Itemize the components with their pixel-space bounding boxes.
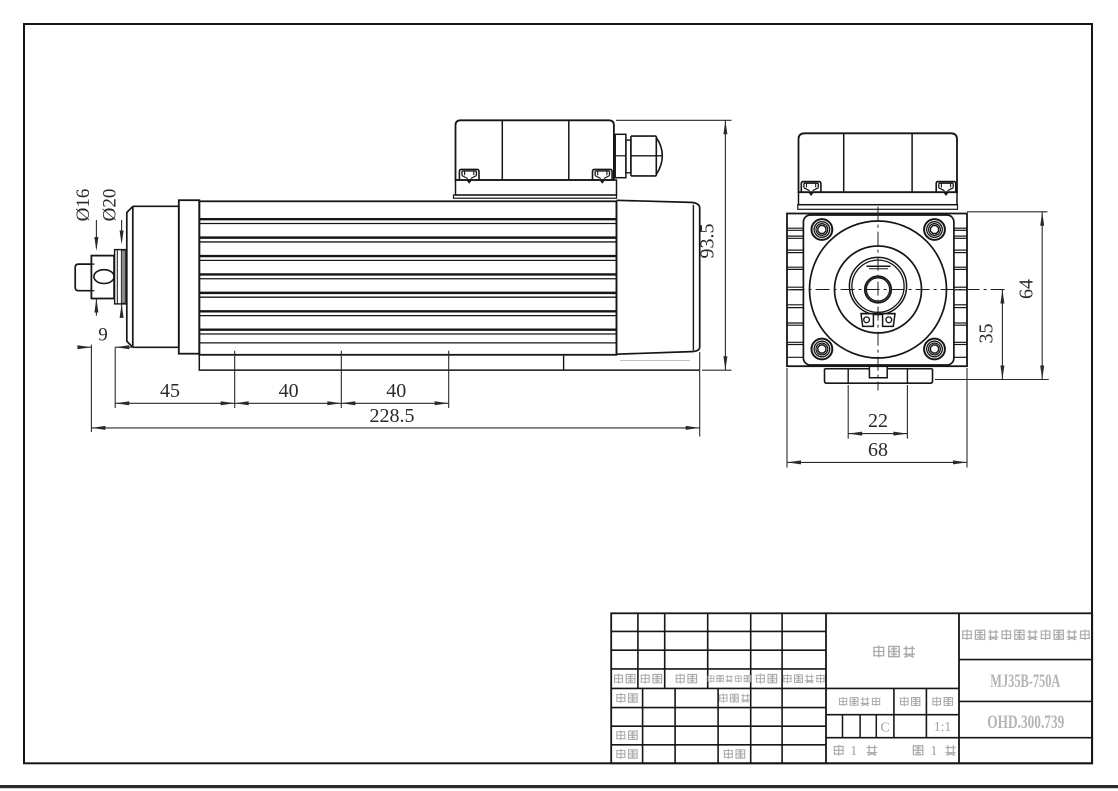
svg-text:Ø20: Ø20 [100,189,121,222]
svg-text:MJ35B-750A: MJ35B-750A [990,671,1060,692]
svg-text:64: 64 [1015,279,1037,299]
svg-text:1:1: 1:1 [934,719,951,734]
svg-text:C: C [880,721,889,736]
svg-text:9: 9 [98,325,108,346]
svg-text:1: 1 [850,744,857,759]
svg-text:68: 68 [868,439,888,461]
svg-text:228.5: 228.5 [370,405,415,427]
svg-text:93.5: 93.5 [697,224,719,259]
svg-text:OHD.300.739: OHD.300.739 [987,712,1064,733]
svg-text:45: 45 [160,380,180,402]
svg-text:22: 22 [868,410,888,432]
svg-text:40: 40 [279,380,299,402]
svg-text:Ø16: Ø16 [73,189,94,222]
svg-text:1: 1 [930,744,937,759]
svg-text:40: 40 [386,380,406,402]
svg-text:35: 35 [975,324,997,344]
